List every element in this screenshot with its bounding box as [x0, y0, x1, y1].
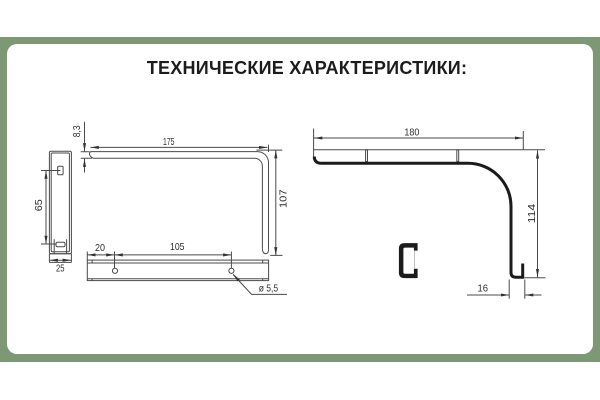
svg-text:114: 114: [526, 204, 538, 224]
svg-text:16: 16: [478, 283, 489, 295]
svg-text:175: 175: [163, 136, 175, 148]
svg-text:65: 65: [33, 199, 45, 211]
svg-text:20: 20: [95, 242, 105, 254]
svg-text:ø 5,5: ø 5,5: [259, 283, 279, 295]
svg-text:180: 180: [404, 127, 419, 139]
svg-text:25: 25: [56, 263, 65, 275]
svg-text:107: 107: [278, 189, 290, 208]
svg-text:105: 105: [170, 241, 185, 253]
svg-text:8,3: 8,3: [71, 125, 83, 137]
